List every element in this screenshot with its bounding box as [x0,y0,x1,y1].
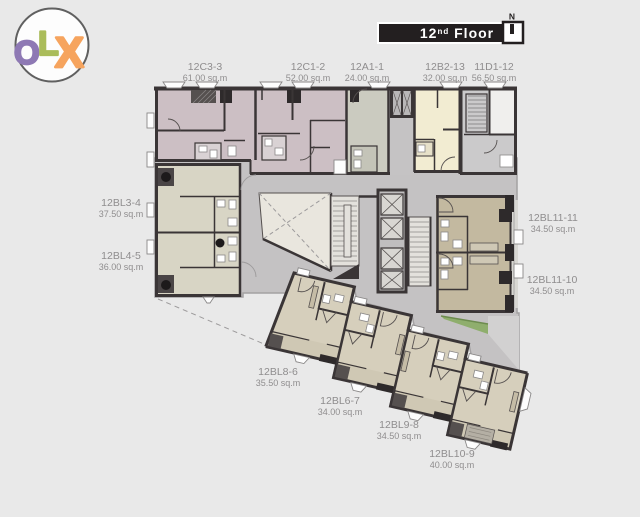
svg-text:12C3-3: 12C3-3 [188,61,223,73]
svg-text:N: N [509,12,515,22]
svg-text:X: X [55,29,84,77]
svg-text:40.00 sq.m: 40.00 sq.m [430,460,475,470]
svg-text:12C1-2: 12C1-2 [291,61,326,73]
svg-text:34.00 sq.m: 34.00 sq.m [318,407,363,417]
svg-text:34.50 sq.m: 34.50 sq.m [530,286,575,296]
svg-text:35.50 sq.m: 35.50 sq.m [256,378,301,388]
svg-text:32.00 sq.m: 32.00 sq.m [423,73,468,83]
svg-text:12BL6-7: 12BL6-7 [320,395,360,407]
svg-text:12BL10-9: 12BL10-9 [429,448,475,460]
svg-text:12nd Floor: 12nd Floor [420,25,494,41]
svg-text:11D1-12: 11D1-12 [474,61,514,73]
svg-text:12BL11-11: 12BL11-11 [528,212,578,224]
svg-text:61.00 sq.m: 61.00 sq.m [183,73,228,83]
svg-text:34.50 sq.m: 34.50 sq.m [377,431,422,441]
svg-text:52.00 sq.m: 52.00 sq.m [286,73,331,83]
svg-text:12BL8-6: 12BL8-6 [258,366,298,378]
svg-text:O: O [14,34,40,71]
svg-text:12BL11-10: 12BL11-10 [527,274,578,286]
svg-text:24.00 sq.m: 24.00 sq.m [345,73,390,83]
svg-text:12B2-13: 12B2-13 [425,61,465,73]
svg-text:37.50 sq.m: 37.50 sq.m [99,209,144,219]
svg-text:56.50 sq.m: 56.50 sq.m [472,73,517,83]
svg-text:12BL9-8: 12BL9-8 [379,419,419,431]
svg-text:34.50 sq.m: 34.50 sq.m [531,224,576,234]
svg-text:12A1-1: 12A1-1 [350,61,384,73]
svg-text:12BL4-5: 12BL4-5 [101,250,141,262]
svg-text:36.00 sq.m: 36.00 sq.m [99,262,144,272]
svg-text:12BL3-4: 12BL3-4 [101,197,141,209]
